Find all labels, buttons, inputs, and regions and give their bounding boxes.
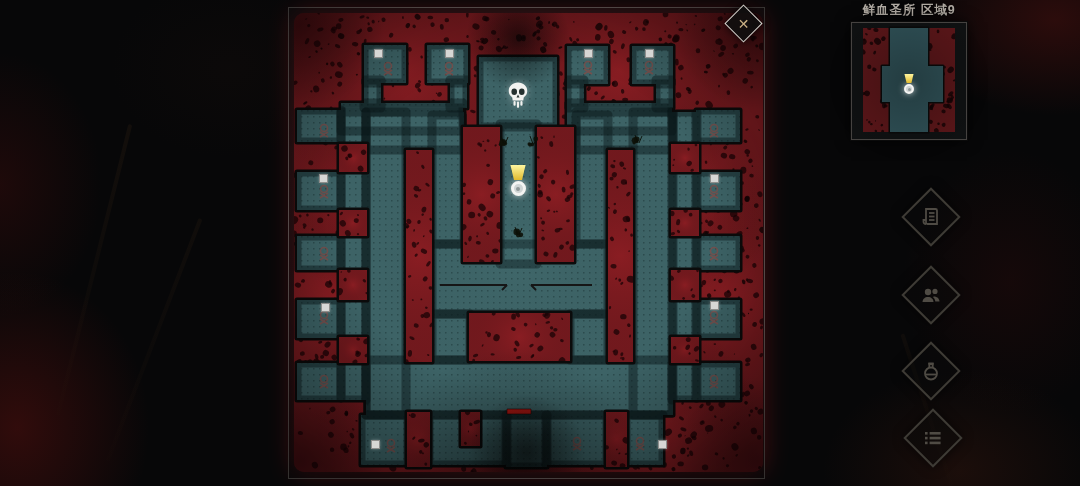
- item-marker: [321, 303, 330, 312]
- item-marker: [645, 49, 654, 58]
- scroll-icon: [919, 205, 943, 229]
- player-medal-ring: [511, 181, 526, 196]
- item-marker: [658, 440, 667, 449]
- people-icon: [919, 283, 943, 307]
- item-marker: [374, 49, 383, 58]
- item-marker: [710, 301, 719, 310]
- player-beam: [508, 165, 528, 180]
- potion-icon: [919, 359, 943, 383]
- close-icon: ✕: [731, 11, 756, 36]
- item-marker: [371, 440, 380, 449]
- area-title: 鲜血圣所 区域9: [851, 2, 967, 19]
- item-marker: [319, 174, 328, 183]
- item-marker: [584, 49, 593, 58]
- item-marker: [445, 49, 454, 58]
- item-marker: [710, 174, 719, 183]
- list-icon: [921, 426, 945, 450]
- boss-skull-icon: [505, 81, 531, 109]
- player-marker: [508, 165, 528, 196]
- game-screen: ✕ 鲜血圣所 区域9: [0, 0, 1080, 486]
- minimap[interactable]: [851, 22, 967, 140]
